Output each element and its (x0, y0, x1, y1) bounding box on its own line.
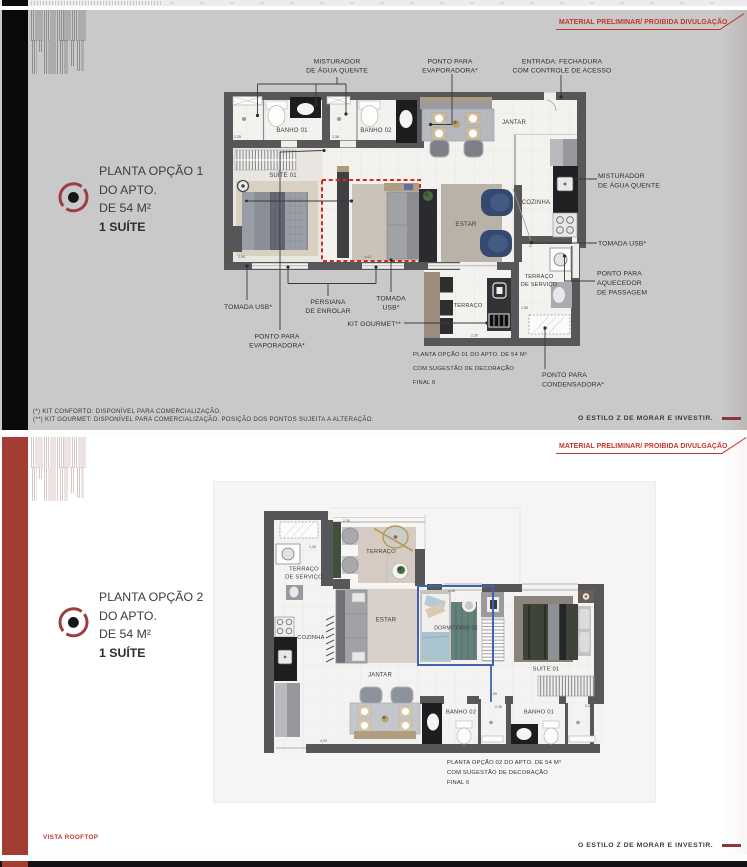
svg-text:COM SUGESTÃO DE DECORAÇÃO: COM SUGESTÃO DE DECORAÇÃO (447, 769, 548, 776)
svg-text:ESTAR: ESTAR (455, 221, 477, 228)
svg-text:USB*: USB* (382, 305, 399, 312)
svg-text:PONTO PARA: PONTO PARA (428, 59, 473, 66)
svg-text:COM CONTROLE DE ACESSO: COM CONTROLE DE ACESSO (513, 68, 612, 75)
svg-text:TOMADA USB*: TOMADA USB* (598, 241, 646, 248)
svg-text:2,90: 2,90 (490, 692, 497, 696)
svg-text:MISTURADOR: MISTURADOR (314, 59, 361, 66)
svg-text:SUÍTE 01: SUÍTE 01 (533, 666, 560, 673)
svg-text:TOMADA USB*: TOMADA USB* (224, 304, 272, 311)
svg-text:BANHO 02: BANHO 02 (360, 128, 392, 134)
svg-text:4,20: 4,20 (320, 739, 327, 743)
svg-text:2,90: 2,90 (238, 255, 245, 259)
svg-text:2,30: 2,30 (343, 519, 350, 523)
svg-text:PERSIANA: PERSIANA (310, 299, 346, 306)
svg-text:FINAL 6: FINAL 6 (447, 780, 469, 786)
svg-text:DE PASSAGEM: DE PASSAGEM (597, 290, 647, 297)
svg-text:MISTURADOR: MISTURADOR (598, 173, 645, 180)
svg-text:PONTO PARA: PONTO PARA (542, 372, 587, 379)
svg-text:ENTRADA: FECHADURA: ENTRADA: FECHADURA (522, 59, 603, 66)
svg-text:EVAPORADORA*: EVAPORADORA* (422, 68, 478, 75)
svg-text:COZINHA: COZINHA (297, 635, 325, 641)
svg-text:DORMITÓRIO 02: DORMITÓRIO 02 (434, 625, 478, 632)
svg-text:EVAPORADORA*: EVAPORADORA* (249, 343, 305, 350)
svg-text:4,41: 4,41 (364, 255, 371, 259)
svg-text:TERRAÇO: TERRAÇO (366, 549, 396, 555)
svg-text:2,35: 2,35 (585, 704, 592, 708)
svg-text:DE ÁGUA QUENTE: DE ÁGUA QUENTE (598, 181, 660, 190)
svg-text:DE SERVIÇO: DE SERVIÇO (285, 575, 323, 581)
svg-text:PLANTA OPÇÃO 01 DO APTO. DE 54: PLANTA OPÇÃO 01 DO APTO. DE 54 M² (413, 351, 527, 358)
svg-text:3,76: 3,76 (579, 104, 583, 111)
svg-text:BANHO 02: BANHO 02 (446, 710, 476, 716)
svg-text:PLANTA OPÇÃO 02 DO APTO. DE 54: PLANTA OPÇÃO 02 DO APTO. DE 54 M³ (447, 759, 561, 766)
svg-text:TERRAÇO: TERRAÇO (525, 274, 554, 280)
svg-text:AQUECEDOR: AQUECEDOR (597, 280, 642, 287)
svg-text:DE ENROLAR: DE ENROLAR (305, 308, 350, 315)
svg-text:COM SUGESTÃO DE DECORAÇÃO: COM SUGESTÃO DE DECORAÇÃO (413, 365, 514, 372)
svg-text:CONDENSADORA*: CONDENSADORA* (542, 382, 604, 389)
svg-text:2,36: 2,36 (495, 705, 502, 709)
svg-text:3,76: 3,76 (267, 738, 271, 745)
svg-text:PONTO PARA: PONTO PARA (255, 334, 300, 341)
svg-text:BANHO 01: BANHO 01 (524, 710, 554, 716)
svg-text:1,55: 1,55 (521, 306, 528, 310)
svg-text:4,96: 4,96 (448, 589, 455, 593)
svg-text:FINAL 6: FINAL 6 (413, 380, 435, 386)
svg-text:2,30: 2,30 (471, 334, 478, 338)
svg-text:ESTAR: ESTAR (376, 618, 397, 624)
svg-text:TERRAÇO: TERRAÇO (454, 303, 483, 309)
svg-text:2,35: 2,35 (234, 135, 241, 139)
svg-text:BANHO 01: BANHO 01 (276, 128, 308, 134)
svg-text:SUÍTE 01: SUÍTE 01 (269, 172, 297, 179)
svg-text:DE ÁGUA QUENTE: DE ÁGUA QUENTE (306, 66, 368, 75)
svg-text:JANTAR: JANTAR (502, 120, 527, 126)
svg-text:COZINHA: COZINHA (522, 200, 550, 206)
svg-text:1,35: 1,35 (309, 545, 316, 549)
svg-text:JANTAR: JANTAR (368, 673, 393, 679)
svg-text:KIT GOURMET**: KIT GOURMET** (347, 321, 401, 328)
svg-text:PONTO PARA: PONTO PARA (597, 271, 642, 278)
svg-text:2,36: 2,36 (332, 135, 339, 139)
svg-text:TERRAÇO: TERRAÇO (289, 567, 319, 573)
svg-text:DE SERVIÇO: DE SERVIÇO (521, 282, 558, 288)
svg-text:TOMADA: TOMADA (376, 296, 406, 303)
